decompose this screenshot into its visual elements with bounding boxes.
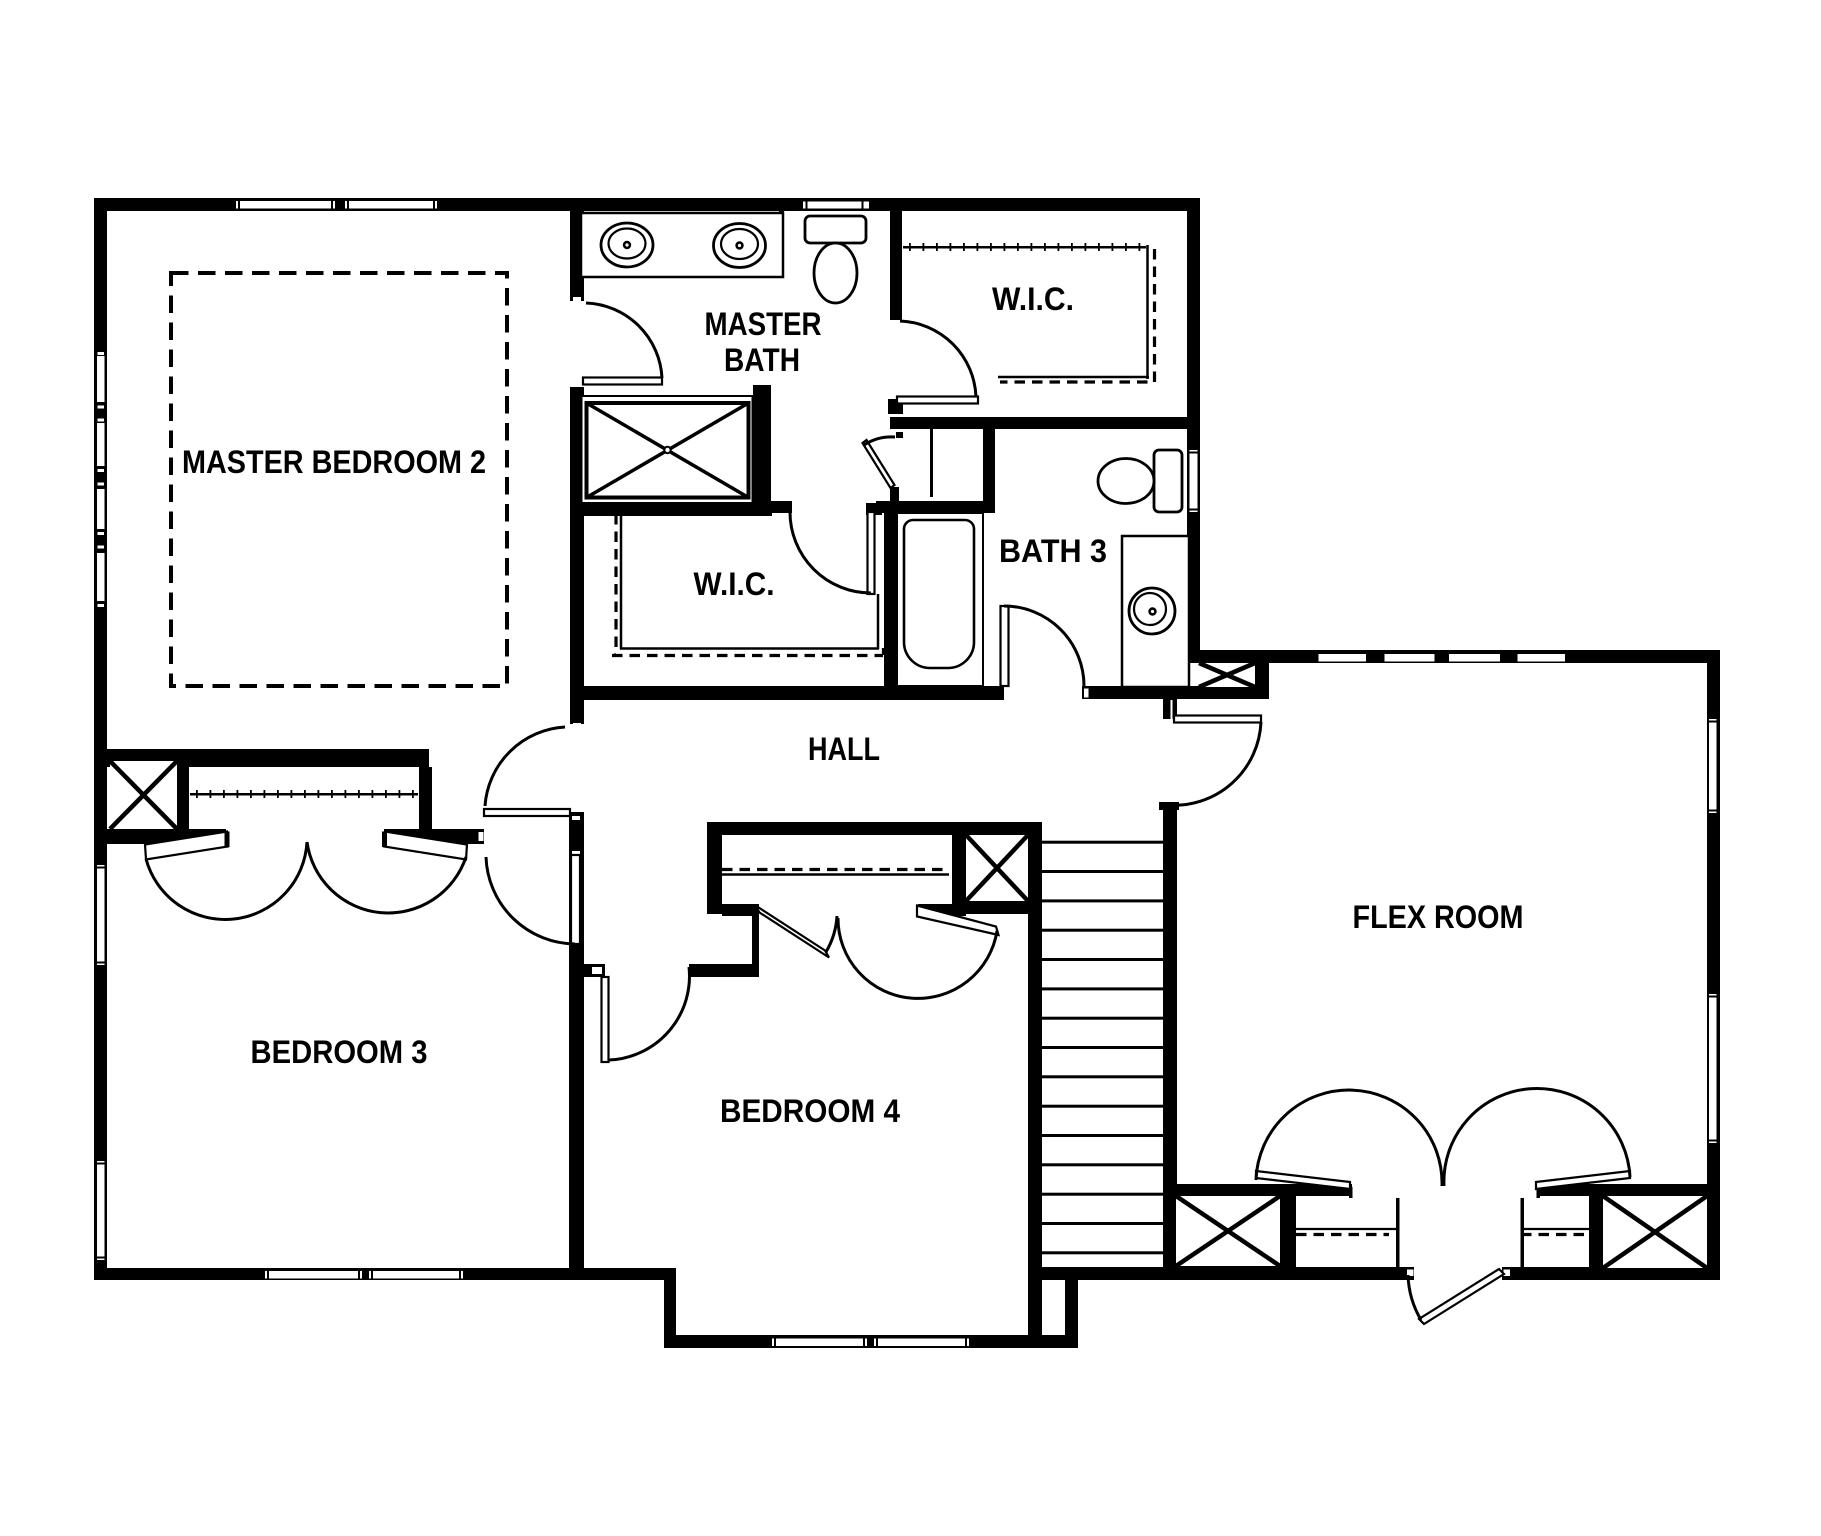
- svg-text:MASTER: MASTER: [705, 306, 822, 342]
- svg-text:HALL: HALL: [808, 731, 880, 767]
- svg-text:MASTER BEDROOM 2: MASTER BEDROOM 2: [182, 444, 486, 480]
- svg-text:BATH 3: BATH 3: [999, 533, 1107, 569]
- svg-text:BEDROOM 3: BEDROOM 3: [251, 1034, 428, 1070]
- svg-text:BATH: BATH: [724, 342, 800, 378]
- svg-text:FLEX ROOM: FLEX ROOM: [1353, 899, 1524, 935]
- svg-text:BEDROOM 4: BEDROOM 4: [720, 1093, 900, 1129]
- svg-text:W.I.C.: W.I.C.: [992, 281, 1074, 317]
- svg-text:W.I.C.: W.I.C.: [694, 566, 775, 602]
